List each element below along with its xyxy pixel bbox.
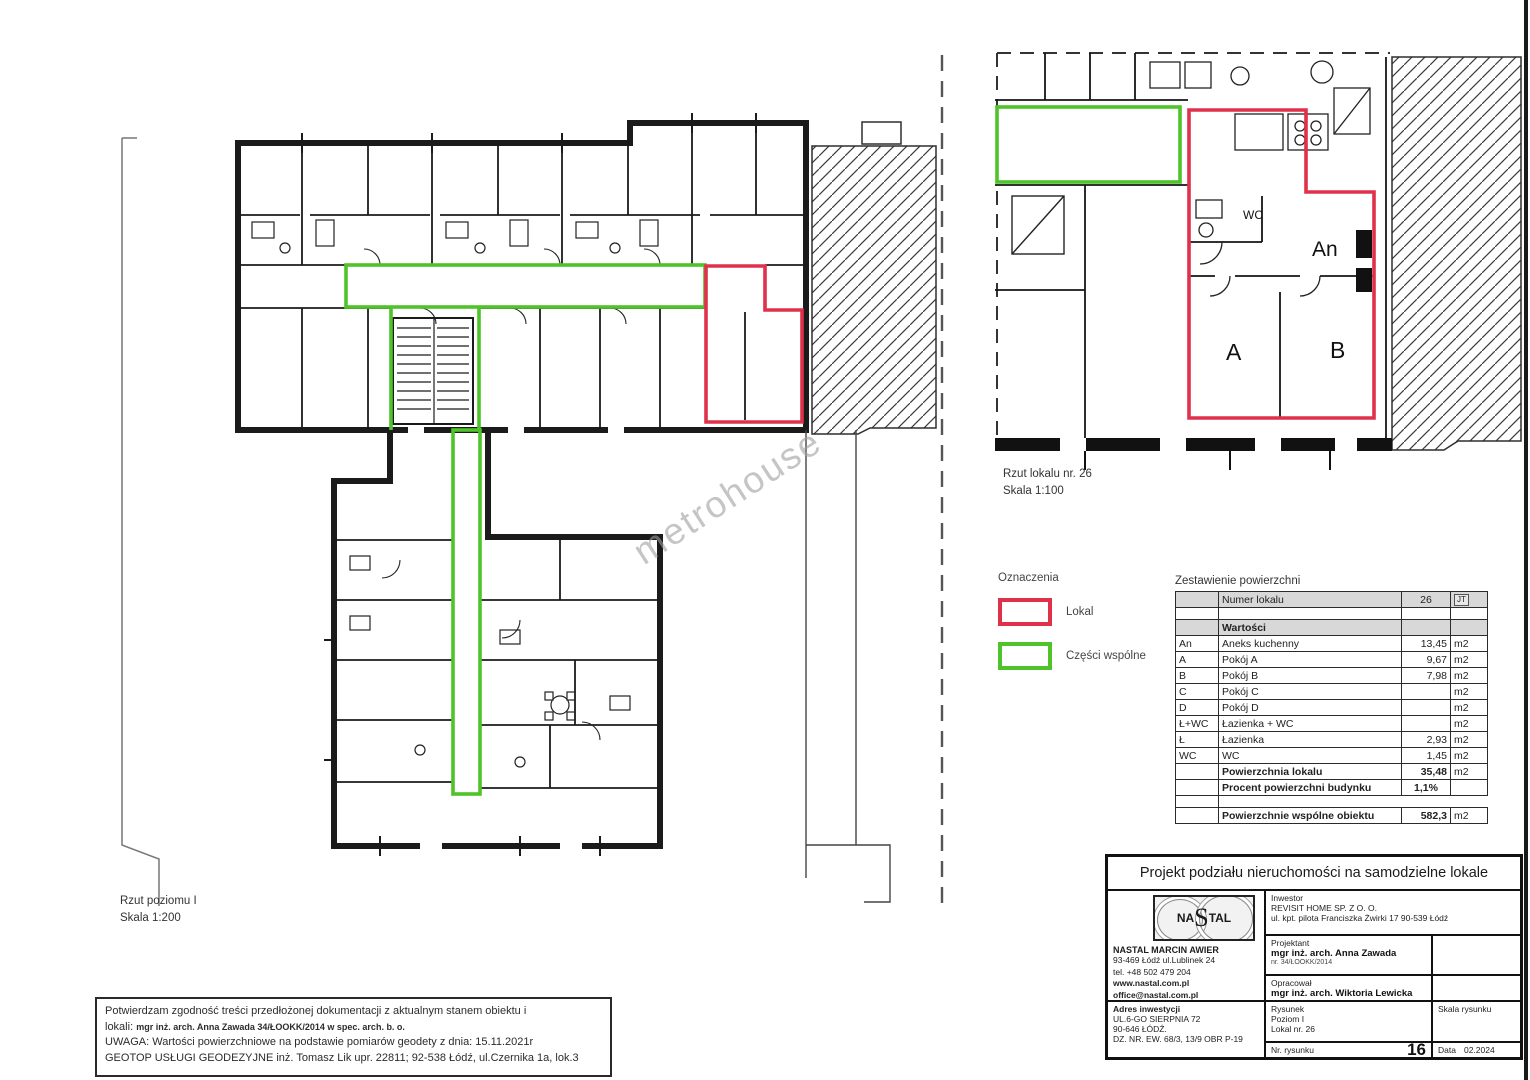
company-address: 93-469 Łódź ul.Lublinek 24 [1113,955,1259,967]
area-summary: Zestawienie powierzchni Numer lokalu 26 … [1175,575,1495,824]
section-label: Wartości [1219,620,1402,636]
rysunek-lokal: Lokal nr. 26 [1271,1024,1426,1034]
skala-cell: Skala rysunku [1432,1001,1521,1042]
table-row: APokój A9,67m2 [1176,652,1488,668]
room-label-wc: WC [1243,208,1263,222]
inwestor-address: ul. kpt. pilota Franciszka Żwirki 17 90-… [1271,913,1515,923]
sheet-border [1524,0,1528,1080]
legend: Oznaczenia Lokal Części wspólne [998,572,1146,686]
company-website[interactable]: www.nastal.com.pl [1113,978,1259,990]
table-row: WCWC1,45m2 [1176,748,1488,764]
date-cell: Data 02.2024 [1432,1042,1521,1058]
table-row: AnAneks kuchenny13,45m2 [1176,636,1488,652]
main-plan-caption: Rzut poziomu I Skala 1:200 [120,893,197,927]
notes-line1: Potwierdzam zgodność treści przedłożonej… [105,1004,602,1020]
property-boundary-line [122,138,159,906]
table-row: BPokój B7,98m2 [1176,668,1488,684]
header-unit-badge: JT [1454,594,1469,606]
notes-line2: lokali: mgr inż. arch. Anna Zawada 34/ŁO… [105,1020,602,1036]
room-label-a: A [1226,339,1242,365]
table-row: DPokój Dm2 [1176,700,1488,716]
table-total-row: Powierzchnie wspólne obiektu582,3m2 [1176,808,1488,824]
detail-plan-caption-line1: Rzut lokalu nr. 26 [1003,466,1092,483]
lokal-label: Lokal [1066,606,1094,618]
opracowal-cell: Opracował mgr inż. arch. Wiktoria Lewick… [1265,975,1432,1001]
company-email[interactable]: office@nastal.com.pl [1113,990,1259,1002]
main-plan-caption-line1: Rzut poziomu I [120,893,197,910]
common-label: Części wspólne [1066,650,1146,662]
header-label: Numer lokalu [1219,592,1402,608]
table-row: Ł+WCŁazienka + WCm2 [1176,716,1488,732]
architect-credential: mgr inż. arch. Anna Zawada 34/ŁOOKK/2014… [136,1022,405,1032]
rysunek-cell: Rysunek Poziom I Lokal nr. 26 [1265,1001,1432,1042]
room-label-an: An [1312,238,1338,261]
hatched-area-main [812,146,936,434]
room-label-b: B [1330,337,1345,363]
detail-fixtures-top [1150,61,1370,134]
table-header-row: Numer lokalu 26 JT [1176,592,1488,608]
notes-line3: UWAGA: Wartości powierzchniowe na podsta… [105,1035,602,1051]
invest-address-label: Adres inwestycji [1113,1004,1259,1014]
projektant-cell: Projektant mgr inż. arch. Anna Zawada nr… [1265,935,1432,975]
legend-item-lokal: Lokal [998,598,1146,626]
window-fixture [1012,196,1064,254]
company-panel: NASTAL NASTAL MARCIN AWIER 93-469 Łódź u… [1107,890,1265,1001]
hatched-area-detail [1392,57,1521,450]
common-swatch [998,642,1052,670]
detail-plan-caption-line2: Skala 1:100 [1003,483,1092,500]
table-row: ŁŁazienka2,93m2 [1176,732,1488,748]
inwestor-name: REVISIT HOME SP. Z O. O. [1271,903,1515,913]
invest-address-cell: Adres inwestycji UL.6-GO SIERPNIA 72 90-… [1107,1001,1265,1058]
table-gap-row [1176,796,1488,808]
notes-line4: GEOTOP USŁUGI GEODEZYJNE inż. Tomasz Lik… [105,1051,602,1067]
company-phone: tel. +48 502 479 204 [1113,967,1259,979]
project-title: Projekt podziału nieruchomości na samodz… [1107,856,1521,890]
legend-title: Oznaczenia [998,572,1146,584]
projektant-signature-cell [1432,935,1521,975]
company-logo: NASTAL [1153,895,1255,941]
lokal-swatch [998,598,1052,626]
area-table: Numer lokalu 26 JT Wartości AnAneks kuch… [1175,591,1488,824]
projektant-number: nr. 34/ŁOOKK/2014 [1271,959,1426,966]
drawing-number: 16 [1407,1042,1426,1058]
detail-plan-caption: Rzut lokalu nr. 26 Skala 1:100 [1003,466,1092,500]
area-table-title: Zestawienie powierzchni [1175,575,1495,587]
company-name: NASTAL MARCIN AWIER [1113,945,1259,955]
lokal-interior [1189,114,1374,418]
main-plan-caption-line2: Skala 1:200 [120,910,197,927]
drawing-number-cell: Nr. rysunku 16 [1265,1042,1432,1058]
rysunek-poziom: Poziom I [1271,1014,1426,1024]
table-row: CPokój Cm2 [1176,684,1488,700]
opracowal-name: mgr inż. arch. Wiktoria Lewicka [1271,988,1426,999]
roof-bump [862,122,901,144]
date-value: 02.2024 [1464,1045,1495,1055]
title-block: Projekt podziału nieruchomości na samodz… [1105,854,1523,1060]
confirmation-notes: Potwierdzam zgodność treści przedłożonej… [95,997,612,1077]
green-common-outline-detail [997,107,1180,182]
detail-floor-plan: WC An A B [995,53,1521,470]
table-spacer-row [1176,608,1488,620]
inwestor-cell: Inwestor REVISIT HOME SP. Z O. O. ul. kp… [1265,890,1521,935]
opracowal-signature-cell [1432,975,1521,1001]
top-wing-outer-wall [238,123,806,430]
header-lokal-number: 26 [1402,592,1451,608]
table-summary-row: Powierzchnia lokalu35,48m2 [1176,764,1488,780]
table-summary-row: Procent powierzchni budynku1,1% [1176,780,1488,796]
detail-interior-walls [995,53,1189,438]
projektant-name: mgr inż. arch. Anna Zawada [1271,948,1426,959]
bottom-wing-outer-wall [334,430,660,846]
red-lokal-outline-detail [1189,110,1374,418]
legend-item-common: Części wspólne [998,642,1146,670]
table-section-row: Wartości [1176,620,1488,636]
